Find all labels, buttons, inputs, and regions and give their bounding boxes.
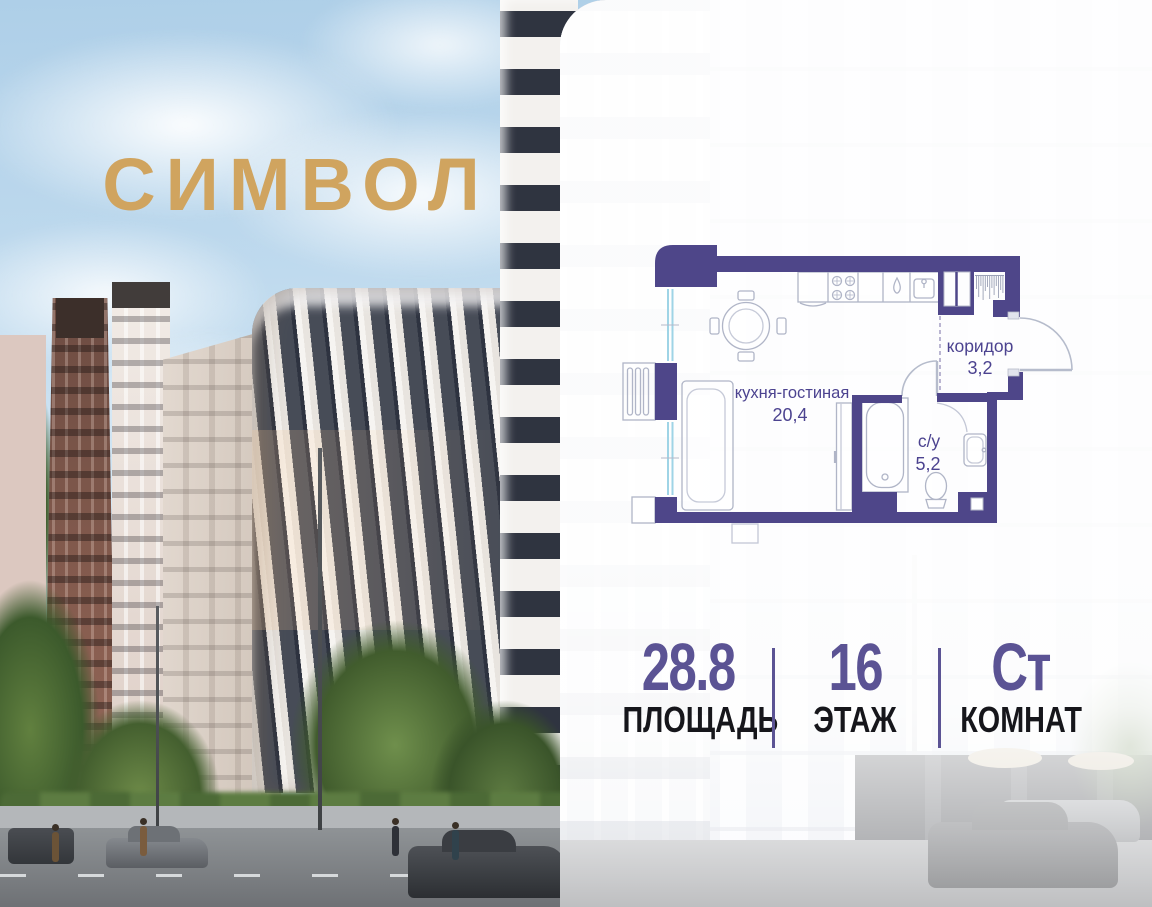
stat-area: 28.8 ПЛОЩАДЬ — [603, 640, 773, 737]
pedestrian — [392, 826, 399, 856]
street-lamp — [156, 606, 159, 830]
building-brick-roof — [56, 298, 104, 338]
pedestrian — [140, 826, 147, 856]
stat-floor-value: 16 — [828, 640, 882, 696]
building-white-roof — [112, 282, 170, 308]
washbasin — [964, 434, 986, 466]
car — [8, 828, 74, 864]
dining-table — [723, 303, 770, 350]
pedestrian — [52, 832, 59, 862]
pedestrian — [452, 830, 459, 860]
bathtub — [862, 398, 908, 492]
entrance-door — [1020, 318, 1072, 370]
listing-card: СИМВОЛ — [0, 0, 1152, 907]
kitchen-counter — [798, 272, 940, 306]
stat-area-value: 28.8 — [641, 640, 734, 696]
car — [106, 838, 208, 868]
stat-rooms-label: КОМНАТ — [960, 705, 1082, 735]
room-area-kitchen: 20,4 — [772, 405, 807, 425]
car — [408, 846, 566, 898]
closet-hangers — [975, 275, 1004, 300]
stat-rooms: Ст КОМНАТ — [936, 640, 1106, 737]
stat-floor: 16 ЭТАЖ — [770, 640, 940, 737]
stat-rooms-value: Ст — [992, 640, 1051, 696]
building-reflection — [252, 430, 515, 630]
room-area-bathroom: 5,2 — [915, 454, 940, 474]
bench-outside — [732, 524, 758, 543]
brand-logo: СИМВОЛ — [86, 148, 506, 222]
street-lamp — [318, 448, 322, 830]
room-label-bathroom: с/у — [918, 431, 941, 451]
vent-shaft — [944, 272, 970, 306]
floor-plan: кухня-гостиная 20,4 коридор 3,2 с/у 5,2 — [600, 225, 1100, 560]
duct-box — [971, 498, 983, 510]
room-label-corridor: коридор — [947, 336, 1014, 356]
wardrobe-cabinet — [835, 403, 852, 510]
loggia-box — [632, 497, 655, 523]
corner-shelf-arc — [937, 403, 967, 432]
stat-area-label: ПЛОЩАДЬ — [622, 705, 778, 735]
sofa — [682, 381, 733, 510]
bathroom-door — [902, 361, 937, 396]
stat-floor-label: ЭТАЖ — [813, 705, 896, 735]
ac-unit-basket — [623, 363, 655, 420]
room-label-kitchen: кухня-гостиная — [735, 384, 850, 402]
room-area-corridor: 3,2 — [967, 358, 992, 378]
toilet — [926, 473, 947, 509]
